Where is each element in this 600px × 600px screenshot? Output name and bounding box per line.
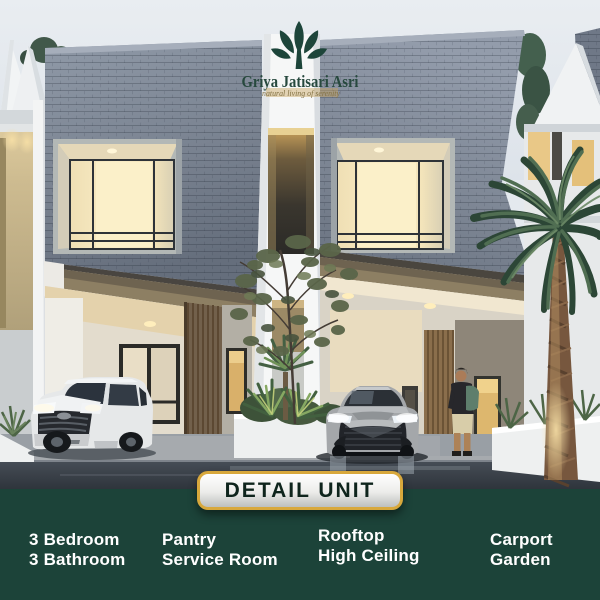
svg-text:natural living of serenity: natural living of serenity <box>262 89 340 98</box>
